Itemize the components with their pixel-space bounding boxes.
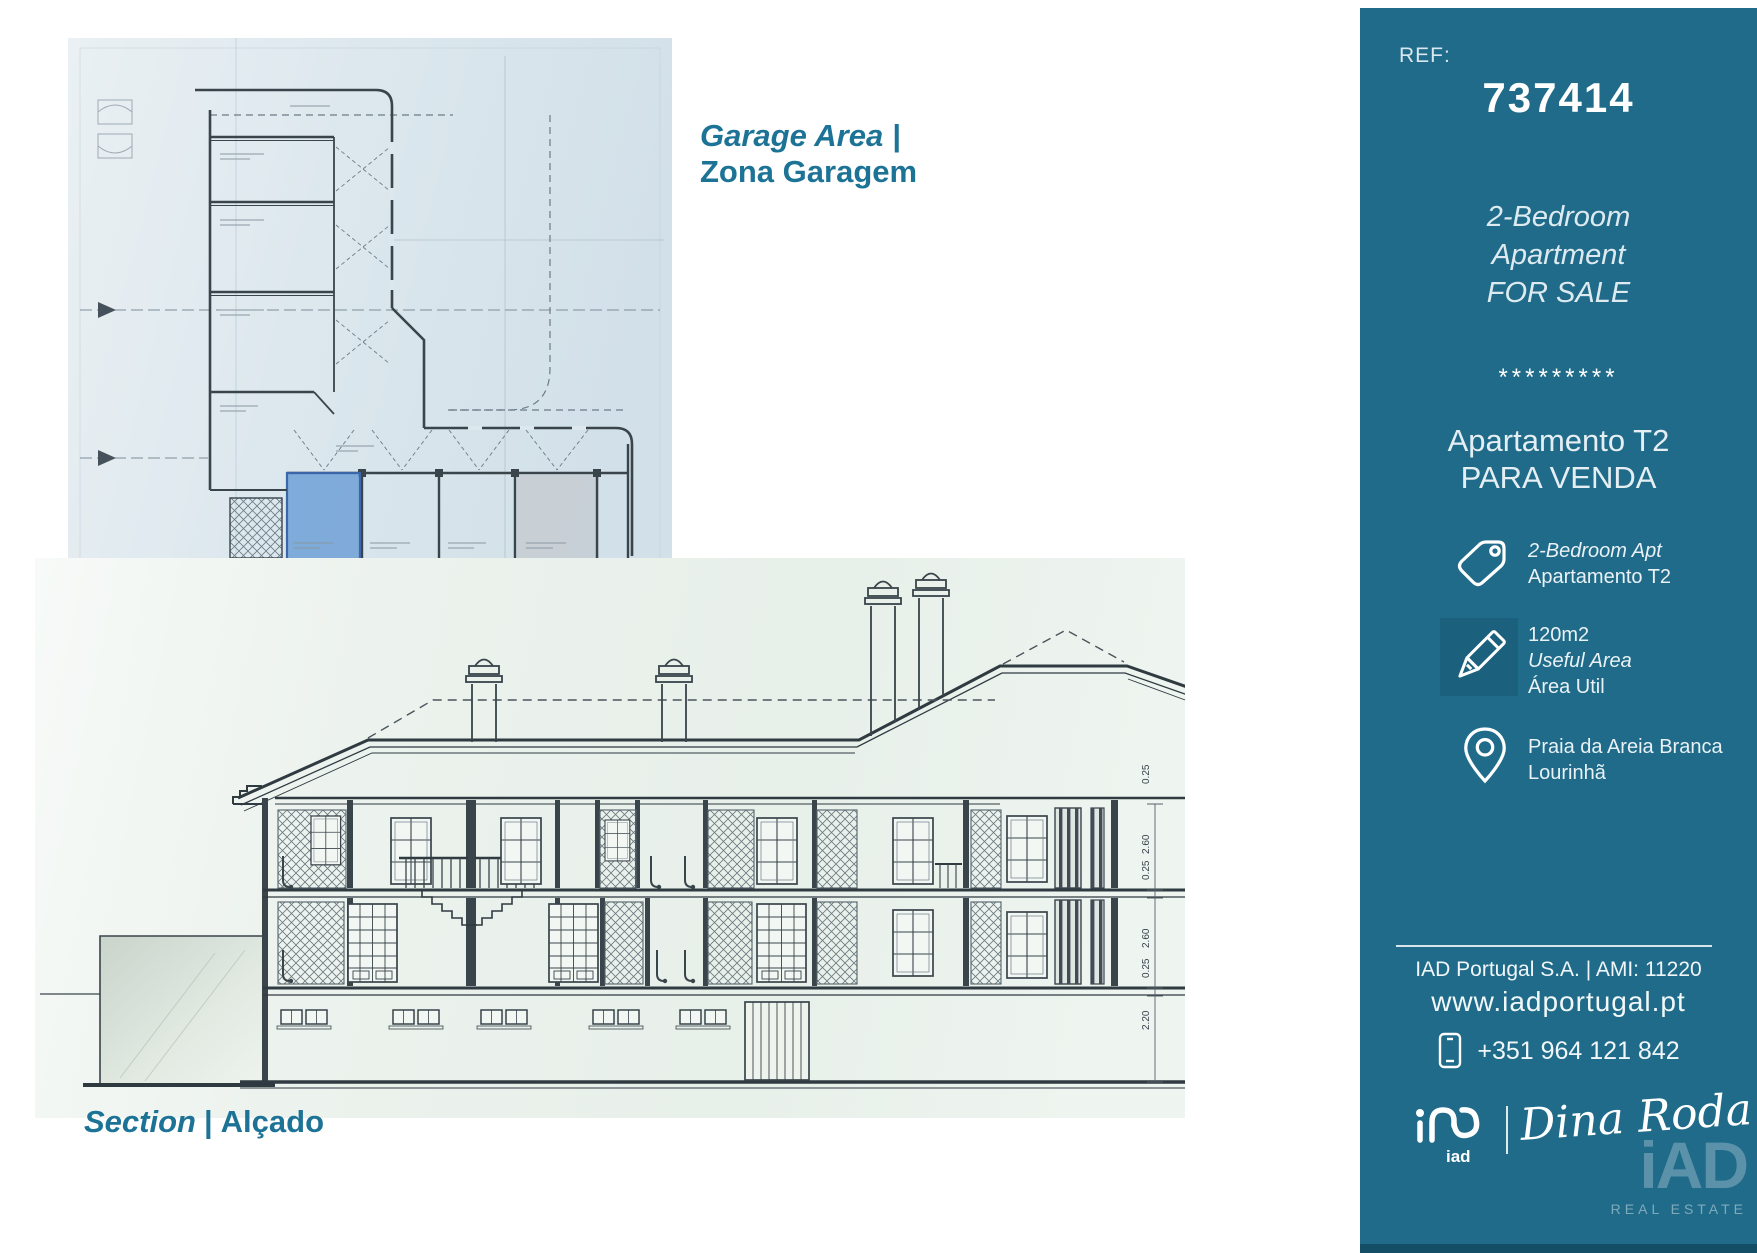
dimension-label: 0.25 xyxy=(1141,860,1152,880)
section-drawing-sheet: 0.25 2.60 0.25 2.60 0.25 2.20 0.90 1.40 … xyxy=(35,558,1185,1118)
section-caption-en: Section xyxy=(84,1104,196,1139)
dimension-label: 0.25 xyxy=(1141,764,1152,784)
flyer-page: 0.25 2.60 0.25 2.60 0.25 2.20 0.90 1.40 … xyxy=(0,0,1757,1253)
price-hidden-stars: ********* xyxy=(1360,364,1757,392)
dimension-label: 2.20 xyxy=(1141,1010,1152,1030)
feature-area-en: Useful Area xyxy=(1528,648,1632,674)
company-line: IAD Portugal S.A. | AMI: 11220 xyxy=(1360,958,1757,982)
garage-plan-sheet xyxy=(68,38,672,627)
garage-caption-pt: Zona Garagem xyxy=(700,154,917,190)
feature-type-pt: Apartamento T2 xyxy=(1528,564,1671,590)
section-caption: Section|Alçado xyxy=(84,1104,324,1140)
feature-type: 2-Bedroom Apt Apartamento T2 xyxy=(1528,538,1671,590)
dimension-label: 0.25 xyxy=(1141,958,1152,978)
feature-area-value: 120m2 xyxy=(1528,622,1632,648)
phone-number: +351 964 121 842 xyxy=(1477,1037,1679,1066)
tag-icon xyxy=(1452,532,1514,588)
ref-label: REF: xyxy=(1399,44,1451,68)
property-info-sidebar: REF: 737414 2-Bedroom Apartment FOR SALE… xyxy=(1360,8,1757,1253)
highlighted-parking-space xyxy=(287,473,360,560)
feature-area-pt: Área Util xyxy=(1528,674,1632,700)
title-en-line3: FOR SALE xyxy=(1360,274,1757,312)
title-en-line2: Apartment xyxy=(1360,236,1757,274)
title-pt-line1: Apartamento T2 xyxy=(1360,422,1757,459)
watermark-main: iAD xyxy=(1611,1132,1747,1198)
grey-garage-box xyxy=(517,475,599,560)
sidebar-bottom-strip xyxy=(1360,1244,1757,1253)
feature-location-line1: Praia da Areia Branca xyxy=(1528,734,1723,760)
dimension-label: 2.60 xyxy=(1141,928,1152,948)
building-section-drawing: 0.25 2.60 0.25 2.60 0.25 2.20 0.90 1.40 … xyxy=(35,558,1185,1118)
iad-watermark: iAD REAL ESTATE xyxy=(1611,1132,1747,1216)
title-portuguese: Apartamento T2 PARA VENDA xyxy=(1360,422,1757,496)
dimension-label: 2.60 xyxy=(1141,834,1152,854)
title-en-line1: 2-Bedroom xyxy=(1360,198,1757,236)
title-english: 2-Bedroom Apartment FOR SALE xyxy=(1360,198,1757,312)
ref-number: 737414 xyxy=(1360,74,1757,122)
garage-caption-en: Garage Area | xyxy=(700,118,917,154)
website-text: www.iadportugal.pt xyxy=(1360,986,1757,1018)
feature-location: Praia da Areia Branca Lourinhã xyxy=(1528,734,1723,786)
garage-floor-plan-drawing xyxy=(68,38,672,627)
garage-area-caption: Garage Area | Zona Garagem xyxy=(700,118,917,190)
feature-location-line2: Lourinhã xyxy=(1528,760,1723,786)
phone-row: +351 964 121 842 xyxy=(1360,1032,1757,1070)
feature-area: 120m2 Useful Area Área Util xyxy=(1528,622,1632,700)
brand-separator xyxy=(1506,1106,1508,1154)
footer-divider xyxy=(1396,945,1712,947)
watermark-sub: REAL ESTATE xyxy=(1611,1202,1747,1216)
pencil-icon xyxy=(1440,618,1518,696)
section-caption-pt: Alçado xyxy=(221,1104,324,1139)
mobile-phone-icon xyxy=(1437,1032,1463,1070)
section-caption-separator: | xyxy=(204,1104,213,1139)
map-pin-icon xyxy=(1460,724,1510,786)
feature-type-en: 2-Bedroom Apt xyxy=(1528,538,1671,564)
iad-logo: iad xyxy=(1408,1094,1494,1168)
title-pt-line2: PARA VENDA xyxy=(1360,459,1757,496)
iad-logo-text: iad xyxy=(1446,1147,1471,1166)
